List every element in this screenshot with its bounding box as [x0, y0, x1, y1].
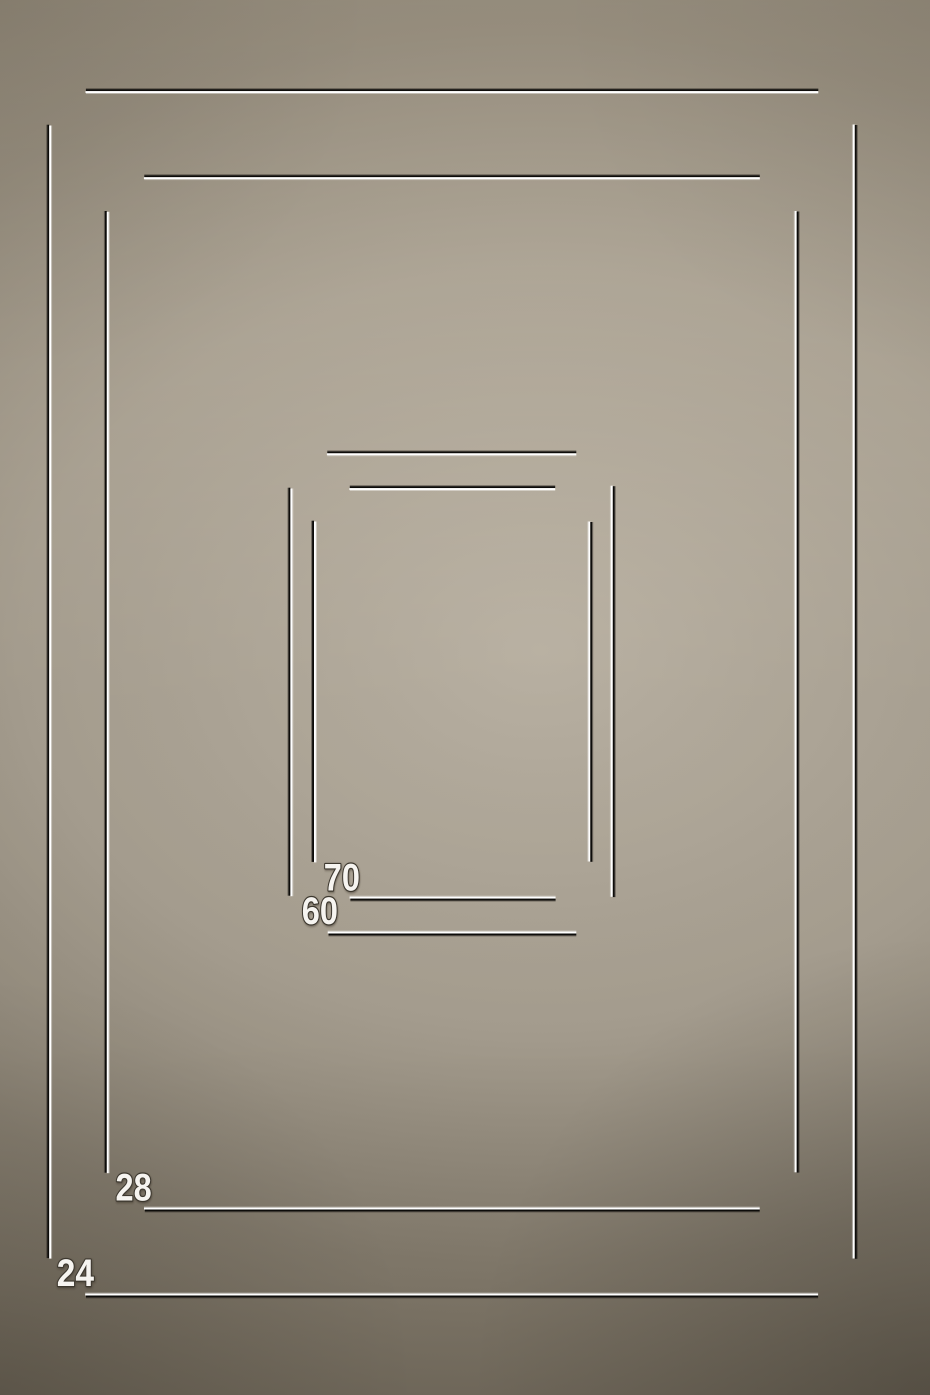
svg-text:28: 28	[116, 1167, 152, 1210]
svg-text:70: 70	[324, 857, 360, 900]
svg-text:24: 24	[57, 1252, 95, 1295]
